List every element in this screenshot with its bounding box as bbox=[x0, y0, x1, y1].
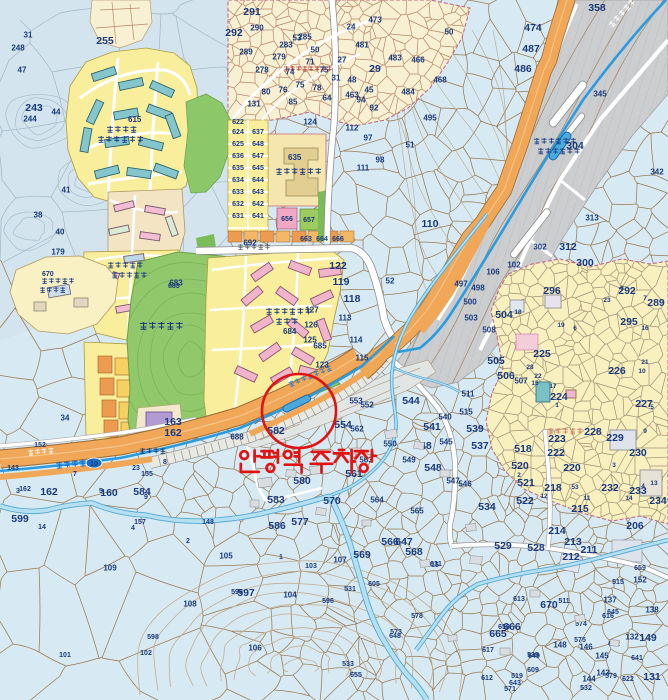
svg-text:4: 4 bbox=[641, 483, 645, 490]
svg-text:248: 248 bbox=[11, 44, 25, 53]
svg-text:632: 632 bbox=[232, 201, 244, 208]
svg-text:223: 223 bbox=[548, 433, 566, 445]
svg-text:76: 76 bbox=[279, 86, 288, 95]
svg-text:4: 4 bbox=[131, 525, 135, 532]
svg-text:1: 1 bbox=[555, 402, 559, 409]
svg-text:48: 48 bbox=[348, 76, 357, 85]
svg-text:47: 47 bbox=[18, 66, 27, 75]
svg-text:483: 483 bbox=[388, 54, 402, 63]
svg-text:529: 529 bbox=[494, 540, 512, 552]
svg-text:226: 226 bbox=[608, 365, 626, 377]
svg-text:642: 642 bbox=[252, 201, 264, 208]
svg-text:635: 635 bbox=[232, 165, 244, 172]
svg-text:540: 540 bbox=[438, 413, 452, 422]
svg-text:228: 228 bbox=[584, 426, 602, 438]
svg-text:515: 515 bbox=[612, 579, 624, 586]
svg-text:224: 224 bbox=[550, 391, 568, 403]
svg-text:10: 10 bbox=[638, 368, 646, 375]
svg-text:16: 16 bbox=[641, 325, 649, 332]
svg-text:518: 518 bbox=[514, 443, 532, 455]
svg-text:622: 622 bbox=[232, 119, 244, 126]
svg-text:659: 659 bbox=[634, 565, 646, 572]
svg-text:38: 38 bbox=[34, 211, 43, 220]
svg-text:80: 80 bbox=[262, 88, 271, 97]
svg-text:473: 473 bbox=[368, 16, 382, 25]
svg-text:215: 215 bbox=[571, 503, 589, 515]
svg-text:635: 635 bbox=[288, 153, 302, 162]
svg-text:292: 292 bbox=[225, 27, 243, 39]
svg-text:289: 289 bbox=[647, 297, 665, 309]
svg-text:468: 468 bbox=[433, 76, 447, 85]
svg-text:106: 106 bbox=[486, 268, 500, 277]
svg-text:97: 97 bbox=[364, 134, 373, 143]
svg-text:684: 684 bbox=[283, 327, 297, 336]
svg-text:544: 544 bbox=[402, 395, 420, 407]
svg-text:113: 113 bbox=[339, 314, 352, 323]
svg-text:23: 23 bbox=[132, 465, 140, 472]
svg-text:495: 495 bbox=[423, 114, 437, 123]
svg-text:3: 3 bbox=[612, 462, 616, 469]
svg-text:279: 279 bbox=[272, 53, 286, 62]
svg-text:28: 28 bbox=[526, 364, 534, 371]
svg-text:22: 22 bbox=[534, 373, 542, 380]
svg-text:212: 212 bbox=[562, 551, 580, 563]
svg-text:644: 644 bbox=[252, 177, 264, 184]
svg-text:75: 75 bbox=[296, 81, 305, 90]
svg-text:617: 617 bbox=[482, 647, 494, 654]
svg-text:655: 655 bbox=[350, 672, 362, 679]
svg-text:3: 3 bbox=[16, 488, 20, 495]
svg-text:51: 51 bbox=[406, 141, 415, 150]
svg-text:31: 31 bbox=[332, 74, 341, 83]
svg-text:24: 24 bbox=[347, 23, 356, 32]
svg-text:647: 647 bbox=[252, 153, 264, 160]
svg-text:34: 34 bbox=[61, 414, 70, 423]
svg-text:342: 342 bbox=[650, 168, 664, 177]
svg-text:278: 278 bbox=[255, 66, 269, 75]
svg-text:586: 586 bbox=[268, 520, 286, 532]
svg-text:295: 295 bbox=[620, 316, 638, 328]
svg-text:52: 52 bbox=[386, 277, 395, 286]
svg-text:103: 103 bbox=[305, 563, 317, 570]
svg-text:643: 643 bbox=[252, 189, 264, 196]
svg-text:8: 8 bbox=[620, 285, 624, 292]
svg-text:5: 5 bbox=[99, 488, 103, 495]
svg-text:570: 570 bbox=[323, 495, 341, 507]
svg-text:50: 50 bbox=[445, 28, 454, 37]
svg-text:114: 114 bbox=[350, 336, 363, 345]
svg-text:575: 575 bbox=[574, 637, 586, 644]
svg-text:222: 222 bbox=[547, 447, 565, 459]
svg-text:145: 145 bbox=[595, 652, 609, 661]
svg-text:234: 234 bbox=[649, 495, 667, 507]
svg-text:119: 119 bbox=[333, 276, 350, 288]
svg-text:132: 132 bbox=[625, 633, 639, 642]
svg-text:110: 110 bbox=[422, 218, 439, 230]
svg-text:179: 179 bbox=[51, 248, 65, 257]
svg-text:75: 75 bbox=[320, 66, 329, 75]
svg-text:71: 71 bbox=[306, 58, 315, 67]
svg-text:162: 162 bbox=[40, 486, 58, 498]
svg-text:503: 503 bbox=[464, 314, 478, 323]
svg-text:6: 6 bbox=[573, 325, 577, 332]
svg-text:44: 44 bbox=[52, 108, 61, 117]
svg-text:53: 53 bbox=[571, 484, 579, 491]
svg-text:658: 658 bbox=[498, 624, 510, 631]
svg-text:622: 622 bbox=[622, 676, 634, 683]
svg-text:40: 40 bbox=[56, 228, 65, 237]
svg-text:106: 106 bbox=[248, 644, 262, 653]
svg-text:486: 486 bbox=[514, 63, 532, 75]
svg-text:520: 520 bbox=[511, 460, 529, 472]
svg-text:497: 497 bbox=[454, 280, 468, 289]
svg-text:545: 545 bbox=[439, 438, 453, 447]
svg-text:569: 569 bbox=[353, 549, 371, 561]
svg-text:584: 584 bbox=[133, 486, 151, 498]
svg-text:548: 548 bbox=[424, 462, 442, 474]
svg-text:2: 2 bbox=[186, 538, 190, 545]
svg-text:9: 9 bbox=[144, 494, 148, 501]
svg-text:112: 112 bbox=[346, 124, 359, 133]
svg-text:596: 596 bbox=[322, 598, 334, 605]
svg-text:7: 7 bbox=[73, 471, 77, 478]
svg-text:537: 537 bbox=[471, 440, 489, 452]
svg-text:508: 508 bbox=[482, 326, 496, 335]
svg-text:64: 64 bbox=[323, 94, 332, 103]
svg-text:109: 109 bbox=[103, 564, 117, 573]
svg-text:613: 613 bbox=[513, 596, 525, 603]
svg-text:92: 92 bbox=[370, 104, 379, 113]
svg-text:692: 692 bbox=[243, 239, 257, 248]
svg-text:296: 296 bbox=[543, 285, 561, 297]
svg-text:656: 656 bbox=[281, 216, 293, 223]
svg-text:533: 533 bbox=[342, 661, 354, 668]
svg-text:12: 12 bbox=[540, 493, 548, 500]
svg-text:115: 115 bbox=[356, 354, 369, 363]
svg-text:625: 625 bbox=[232, 141, 244, 148]
svg-text:14: 14 bbox=[625, 495, 633, 502]
svg-text:645: 645 bbox=[252, 165, 264, 172]
svg-text:157: 157 bbox=[134, 519, 146, 526]
svg-text:550: 550 bbox=[383, 440, 397, 449]
svg-text:162: 162 bbox=[164, 427, 182, 439]
svg-text:31: 31 bbox=[24, 31, 33, 40]
svg-text:2: 2 bbox=[517, 472, 521, 479]
svg-text:657: 657 bbox=[303, 217, 315, 224]
svg-text:641: 641 bbox=[631, 655, 643, 662]
svg-text:565: 565 bbox=[410, 507, 424, 516]
svg-text:127: 127 bbox=[305, 306, 319, 315]
svg-text:577: 577 bbox=[291, 516, 309, 528]
svg-text:283: 283 bbox=[279, 41, 293, 50]
svg-text:511: 511 bbox=[558, 598, 569, 605]
svg-text:5: 5 bbox=[650, 404, 654, 411]
svg-text:122: 122 bbox=[329, 260, 347, 272]
svg-text:111: 111 bbox=[357, 164, 370, 173]
svg-text:506: 506 bbox=[497, 370, 515, 382]
svg-text:595: 595 bbox=[231, 589, 243, 596]
svg-text:101: 101 bbox=[59, 652, 71, 659]
svg-text:232: 232 bbox=[601, 482, 619, 494]
svg-text:244: 244 bbox=[23, 115, 37, 124]
svg-text:573: 573 bbox=[390, 629, 402, 636]
svg-text:17: 17 bbox=[549, 383, 557, 390]
svg-text:615: 615 bbox=[128, 115, 142, 124]
svg-text:562: 562 bbox=[350, 425, 364, 434]
svg-text:522: 522 bbox=[516, 495, 534, 507]
svg-text:144: 144 bbox=[582, 675, 596, 684]
svg-text:18: 18 bbox=[514, 309, 522, 316]
svg-text:534: 534 bbox=[478, 501, 496, 513]
svg-text:633: 633 bbox=[232, 189, 244, 196]
svg-text:645: 645 bbox=[607, 609, 619, 616]
svg-text:605: 605 bbox=[368, 581, 380, 588]
svg-text:304: 304 bbox=[566, 140, 584, 152]
svg-text:583: 583 bbox=[267, 494, 285, 506]
svg-text:9: 9 bbox=[643, 428, 647, 435]
svg-text:206: 206 bbox=[626, 520, 644, 532]
svg-text:74: 74 bbox=[286, 68, 295, 77]
svg-text:85: 85 bbox=[289, 98, 298, 107]
svg-text:78: 78 bbox=[313, 84, 322, 93]
svg-text:152: 152 bbox=[633, 576, 647, 585]
svg-text:148: 148 bbox=[553, 641, 567, 650]
svg-text:27: 27 bbox=[338, 56, 347, 65]
svg-text:41: 41 bbox=[62, 186, 71, 195]
svg-text:131: 131 bbox=[643, 671, 661, 683]
svg-text:666: 666 bbox=[332, 236, 344, 243]
svg-text:539: 539 bbox=[466, 423, 484, 435]
svg-text:220: 220 bbox=[563, 462, 581, 474]
svg-text:243: 243 bbox=[25, 102, 43, 114]
svg-text:511: 511 bbox=[462, 390, 475, 399]
svg-text:624: 624 bbox=[232, 129, 244, 136]
svg-text:152: 152 bbox=[34, 442, 46, 449]
svg-text:291: 291 bbox=[243, 6, 261, 18]
svg-text:104: 104 bbox=[283, 591, 297, 600]
svg-text:599: 599 bbox=[11, 513, 29, 525]
svg-text:571: 571 bbox=[504, 686, 516, 693]
svg-text:98: 98 bbox=[376, 156, 385, 165]
svg-text:612: 612 bbox=[481, 675, 493, 682]
svg-text:229: 229 bbox=[606, 432, 624, 444]
svg-text:609: 609 bbox=[527, 667, 539, 674]
svg-text:290: 290 bbox=[250, 24, 264, 33]
svg-text:15: 15 bbox=[531, 380, 539, 387]
svg-text:162: 162 bbox=[19, 486, 31, 493]
svg-text:505: 505 bbox=[487, 355, 505, 367]
svg-text:138: 138 bbox=[645, 606, 659, 615]
svg-text:466: 466 bbox=[411, 56, 425, 65]
svg-text:300: 300 bbox=[576, 257, 594, 269]
svg-text:19: 19 bbox=[557, 322, 565, 329]
svg-text:541: 541 bbox=[423, 421, 441, 433]
svg-text:663: 663 bbox=[300, 236, 312, 243]
svg-text:29: 29 bbox=[369, 63, 381, 75]
svg-text:155: 155 bbox=[141, 471, 153, 478]
svg-text:631: 631 bbox=[232, 213, 244, 220]
svg-text:255: 255 bbox=[96, 35, 114, 47]
svg-text:143: 143 bbox=[7, 465, 19, 472]
svg-text:118: 118 bbox=[344, 293, 361, 305]
svg-text:1: 1 bbox=[279, 554, 283, 561]
svg-text:463: 463 bbox=[345, 91, 359, 100]
svg-text:532: 532 bbox=[580, 685, 592, 692]
svg-text:564: 564 bbox=[370, 496, 384, 505]
svg-text:535: 535 bbox=[527, 652, 539, 659]
svg-text:8: 8 bbox=[163, 459, 167, 466]
svg-text:515: 515 bbox=[459, 408, 473, 417]
svg-text:102: 102 bbox=[507, 261, 521, 270]
svg-text:641: 641 bbox=[252, 213, 264, 220]
svg-text:289: 289 bbox=[239, 48, 253, 57]
svg-text:546: 546 bbox=[458, 480, 472, 489]
svg-text:579: 579 bbox=[605, 673, 617, 680]
svg-text:637: 637 bbox=[252, 129, 264, 136]
svg-text:688: 688 bbox=[230, 433, 244, 442]
svg-text:126: 126 bbox=[304, 321, 318, 330]
svg-text:149: 149 bbox=[639, 632, 657, 644]
svg-text:554: 554 bbox=[334, 419, 352, 431]
svg-text:598: 598 bbox=[147, 634, 159, 641]
svg-text:123: 123 bbox=[315, 361, 329, 370]
svg-text:358: 358 bbox=[588, 2, 606, 14]
svg-text:683: 683 bbox=[169, 279, 183, 288]
svg-text:647: 647 bbox=[395, 536, 413, 548]
svg-text:531: 531 bbox=[344, 586, 356, 593]
svg-text:107: 107 bbox=[333, 556, 347, 565]
svg-text:636: 636 bbox=[232, 153, 244, 160]
svg-text:131: 131 bbox=[247, 100, 261, 109]
svg-text:481: 481 bbox=[355, 41, 369, 50]
svg-text:500: 500 bbox=[463, 298, 477, 307]
svg-text:549: 549 bbox=[402, 456, 416, 465]
svg-text:13: 13 bbox=[650, 480, 658, 487]
svg-text:14: 14 bbox=[38, 524, 46, 531]
svg-text:553: 553 bbox=[349, 397, 363, 406]
svg-text:670: 670 bbox=[540, 599, 558, 611]
svg-text:21: 21 bbox=[641, 359, 649, 366]
svg-text:302: 302 bbox=[533, 243, 547, 252]
svg-text:507: 507 bbox=[514, 377, 528, 386]
svg-text:124: 124 bbox=[303, 118, 317, 127]
svg-text:45: 45 bbox=[365, 86, 374, 95]
svg-text:664: 664 bbox=[316, 236, 328, 243]
svg-text:11: 11 bbox=[584, 495, 591, 502]
svg-text:634: 634 bbox=[232, 177, 244, 184]
svg-text:312: 312 bbox=[559, 241, 577, 253]
svg-text:102: 102 bbox=[140, 650, 152, 657]
svg-text:484: 484 bbox=[401, 88, 415, 97]
svg-text:23: 23 bbox=[603, 297, 611, 304]
svg-text:285: 285 bbox=[298, 33, 312, 42]
svg-text:7: 7 bbox=[643, 295, 647, 302]
svg-text:148: 148 bbox=[202, 519, 214, 526]
svg-text:225: 225 bbox=[533, 348, 551, 360]
svg-text:685: 685 bbox=[313, 342, 327, 351]
svg-text:214: 214 bbox=[548, 525, 566, 537]
svg-text:528: 528 bbox=[527, 542, 545, 554]
svg-text:213: 213 bbox=[564, 536, 582, 548]
svg-text:648: 648 bbox=[252, 141, 264, 148]
svg-text:670: 670 bbox=[42, 271, 54, 278]
svg-text:50: 50 bbox=[311, 46, 320, 55]
svg-text:108: 108 bbox=[183, 600, 197, 609]
svg-text:504: 504 bbox=[495, 309, 513, 321]
svg-text:137: 137 bbox=[603, 596, 617, 605]
svg-text:345: 345 bbox=[593, 90, 607, 99]
svg-text:230: 230 bbox=[629, 447, 647, 459]
svg-text:519: 519 bbox=[511, 673, 523, 680]
svg-text:474: 474 bbox=[524, 22, 542, 34]
svg-text:498: 498 bbox=[471, 284, 485, 293]
svg-text:313: 313 bbox=[585, 214, 599, 223]
svg-text:487: 487 bbox=[522, 43, 540, 55]
svg-text:105: 105 bbox=[219, 552, 233, 561]
svg-text:211: 211 bbox=[581, 544, 598, 556]
svg-text:578: 578 bbox=[411, 613, 423, 620]
